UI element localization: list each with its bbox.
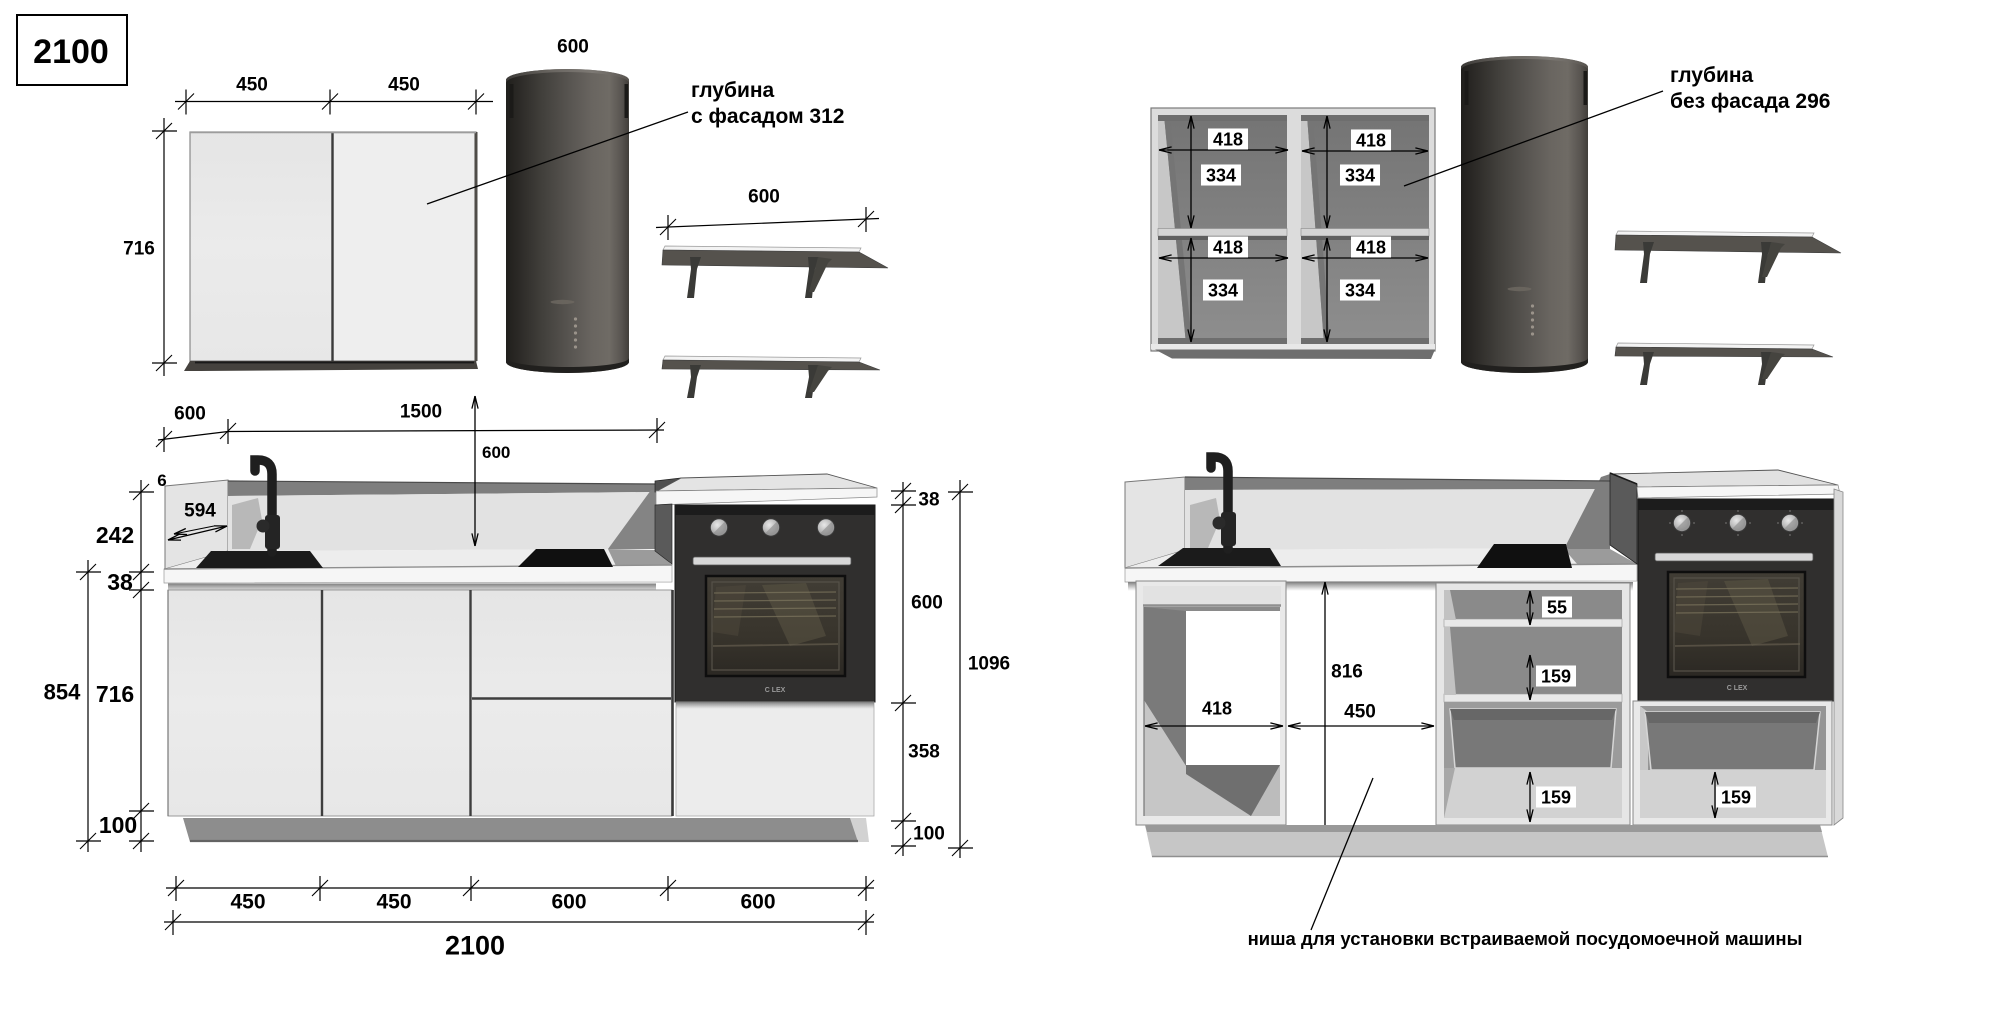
svg-text:450: 450: [236, 75, 268, 96]
svg-text:334: 334: [1345, 165, 1375, 185]
svg-text:418: 418: [1213, 237, 1243, 257]
svg-text:без фасада 296: без фасада 296: [1670, 90, 1830, 113]
svg-text:600: 600: [551, 890, 586, 913]
svg-text:38: 38: [107, 569, 133, 595]
svg-text:418: 418: [1213, 129, 1243, 149]
svg-text:358: 358: [908, 742, 940, 763]
svg-text:418: 418: [1356, 237, 1386, 257]
svg-text:600: 600: [911, 593, 943, 614]
svg-text:600: 600: [740, 890, 775, 913]
svg-text:55: 55: [1547, 597, 1567, 617]
svg-text:418: 418: [1356, 130, 1386, 150]
svg-text:159: 159: [1721, 787, 1751, 807]
svg-text:716: 716: [96, 681, 134, 707]
svg-text:450: 450: [388, 75, 420, 96]
svg-text:334: 334: [1206, 165, 1236, 185]
svg-text:854: 854: [44, 680, 81, 705]
svg-text:C LEX: C LEX: [1727, 685, 1748, 692]
svg-text:242: 242: [96, 522, 134, 548]
svg-text:450: 450: [376, 890, 411, 913]
svg-text:418: 418: [1202, 698, 1232, 718]
svg-text:глубина: глубина: [691, 79, 775, 102]
svg-text:450: 450: [1344, 702, 1376, 723]
svg-text:2100: 2100: [445, 930, 505, 960]
svg-text:600: 600: [174, 404, 206, 425]
svg-text:глубина: глубина: [1670, 64, 1754, 87]
svg-text:2100: 2100: [33, 33, 109, 71]
svg-text:334: 334: [1208, 280, 1238, 300]
svg-text:450: 450: [230, 890, 265, 913]
svg-text:159: 159: [1541, 787, 1571, 807]
svg-text:100: 100: [913, 824, 945, 845]
svg-text:1096: 1096: [968, 654, 1010, 675]
svg-text:334: 334: [1345, 280, 1375, 300]
svg-text:600: 600: [557, 37, 589, 58]
svg-text:38: 38: [918, 490, 939, 511]
svg-text:C LEX: C LEX: [765, 687, 786, 694]
svg-text:600: 600: [748, 187, 780, 208]
svg-text:594: 594: [184, 501, 216, 522]
svg-text:с фасадом 312: с фасадом 312: [691, 105, 844, 128]
svg-text:816: 816: [1331, 662, 1363, 683]
svg-text:600: 600: [482, 443, 510, 462]
svg-text:1500: 1500: [400, 402, 442, 423]
svg-text:ниша для установки встраиваемо: ниша для установки встраиваемой посудомо…: [1248, 928, 1803, 949]
svg-text:159: 159: [1541, 666, 1571, 686]
svg-text:100: 100: [99, 812, 137, 838]
svg-text:6: 6: [157, 471, 166, 490]
svg-text:716: 716: [123, 239, 155, 260]
